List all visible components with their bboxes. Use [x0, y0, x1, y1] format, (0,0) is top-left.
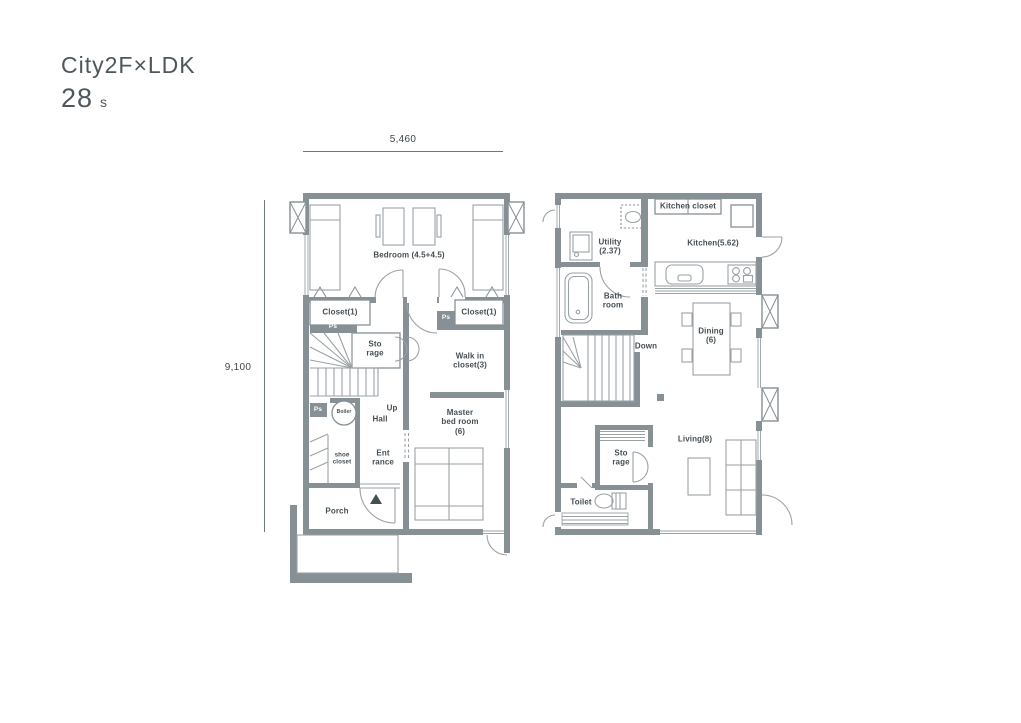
room-label-toilet: Toilet	[570, 497, 591, 506]
refrigerator-icon	[731, 205, 753, 227]
shelf-stripes	[600, 432, 645, 441]
door-swing-icon	[633, 452, 648, 482]
plan-title: City2F×LDK	[61, 52, 196, 79]
room-label-shoe-closet: shoe closet	[333, 452, 351, 467]
shoe-shelf-icon	[310, 434, 328, 483]
bathtub-icon	[565, 273, 592, 323]
desk-icon	[383, 208, 404, 245]
doors-and-furniture	[543, 205, 792, 527]
room-label-closet-right: Closet(1)	[461, 307, 496, 316]
floor-plan-ldk: Utility (2.37) Bath room Kitchen closet …	[540, 190, 800, 550]
room-label-kitchen-closet: Kitchen closet	[660, 201, 716, 210]
bed-icon	[310, 205, 340, 290]
toilet-icon	[595, 493, 626, 509]
shutter-box-icons	[290, 202, 524, 233]
casement-window-icon	[543, 515, 555, 527]
chair-icon	[376, 215, 380, 237]
plan-area: 28s	[61, 83, 196, 114]
height-dimension-label: 9,100	[218, 362, 258, 373]
entrance-arrow-icon	[370, 494, 382, 504]
shutter-box-x	[290, 202, 524, 233]
desk-icon	[413, 208, 435, 245]
outside-step	[297, 535, 398, 573]
floor-plan-bedrooms: Bedroom (4.5+4.5) Closet(1) Closet(1) Ps…	[288, 190, 538, 600]
area-value: 28	[61, 83, 93, 113]
door-swing-icon	[762, 495, 792, 525]
kitchen-counter-icon	[655, 262, 756, 294]
room-label-bathroom: Bath room	[603, 292, 623, 311]
window-slots	[555, 205, 762, 535]
room-label-entrance: Ent rance	[372, 449, 394, 468]
room-label-bedroom: Bedroom (4.5+4.5)	[373, 250, 444, 259]
room-label-hall: Hall	[372, 414, 387, 423]
table-icon	[688, 458, 710, 495]
room-label-utility: Utility (2.37)	[599, 238, 622, 257]
stairs-down-icon	[563, 335, 634, 401]
label-boiler: Boiler	[337, 410, 352, 416]
closet-door-marks	[314, 287, 498, 297]
double-bed-icon	[415, 448, 483, 520]
sliding-door-icon	[643, 268, 646, 296]
label-pipe-space: Ps	[442, 314, 450, 322]
shutter-box-icons	[762, 295, 778, 421]
floorplan-drawing-right	[540, 190, 800, 550]
pillar	[657, 394, 664, 401]
door-swing-icon	[762, 237, 782, 257]
label-stairs-down: Down	[635, 341, 657, 350]
room-label-storage: Sto rage	[612, 449, 629, 468]
width-dimension-line	[303, 151, 503, 152]
room-label-closet-left: Closet(1)	[322, 307, 357, 316]
label-stairs-up: Up	[387, 403, 398, 412]
casement-window-icon	[543, 210, 555, 222]
area-unit: s	[100, 94, 108, 110]
title-block: City2F×LDK 28s	[61, 52, 196, 114]
room-label-master-bedroom: Master bed room (6)	[441, 408, 478, 436]
room-label-walk-in-closet: Walk in closet(3)	[453, 352, 487, 371]
width-dimension-label: 5,460	[303, 134, 503, 145]
chair-icon	[437, 215, 441, 237]
room-label-kitchen: Kitchen(5.62)	[687, 238, 739, 247]
bed-icon	[473, 205, 503, 290]
furniture	[297, 205, 507, 573]
stove-icon	[728, 265, 756, 284]
floorplan-page: City2F×LDK 28s 5,460 9,100	[0, 0, 1021, 723]
label-pipe-space: Ps	[314, 406, 322, 414]
room-label-porch: Porch	[325, 506, 348, 515]
washing-machine-icon	[570, 232, 592, 260]
sliding-door-icon	[405, 433, 409, 460]
room-label-dining: Dining (6)	[698, 327, 723, 346]
label-pipe-space: Ps	[329, 323, 337, 331]
sofa-icon	[726, 440, 756, 515]
height-dimension-line	[264, 200, 265, 532]
room-label-storage: Sto rage	[366, 340, 383, 359]
room-label-living: Living(8)	[678, 434, 712, 443]
door-leaf-icon	[581, 477, 592, 488]
